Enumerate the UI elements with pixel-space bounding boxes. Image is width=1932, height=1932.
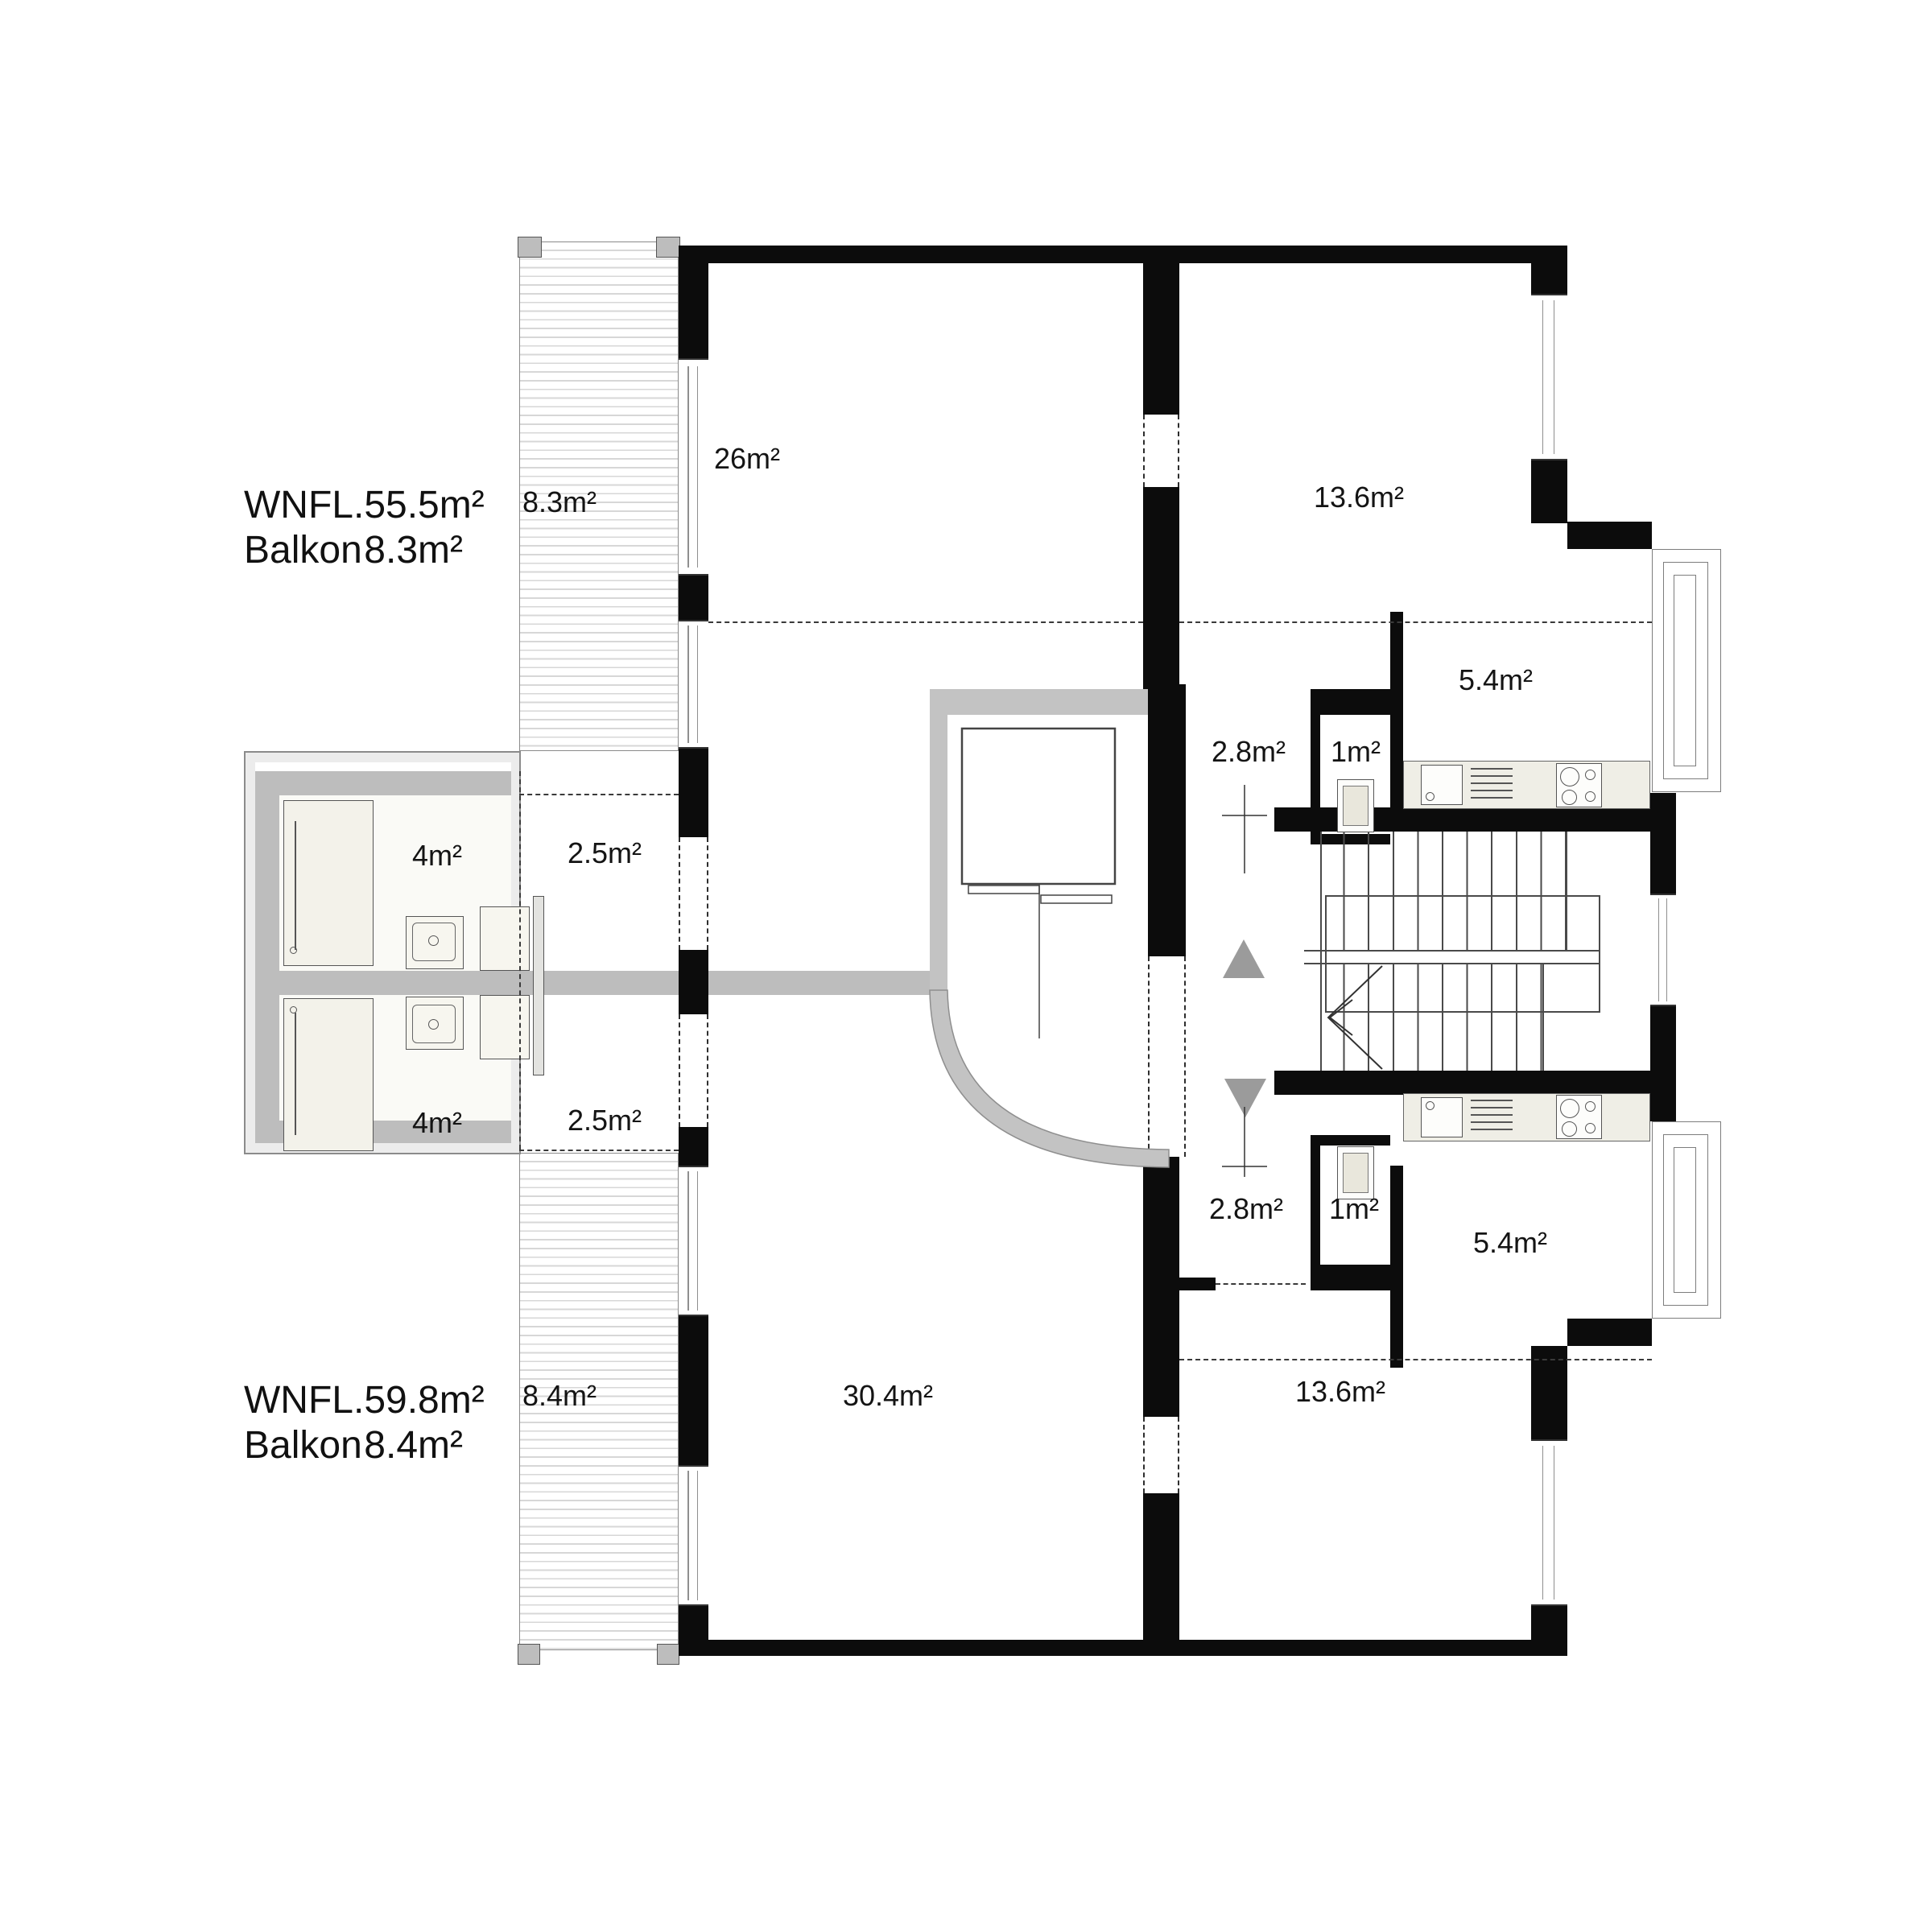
room-label-living-bottom: 30.4m²: [843, 1379, 933, 1413]
room-label-balcony-bottom: 8.4m²: [522, 1379, 597, 1413]
wall-wc: [1311, 1135, 1390, 1146]
wall-stairwell-bottom: [1274, 1071, 1676, 1095]
dashed-opening: [1143, 415, 1179, 487]
elevator-door-leaf: [968, 885, 1039, 894]
shower-partition: [533, 896, 544, 1075]
balkon-bottom-label: Balkon: [244, 1423, 362, 1468]
dashed-wall: [519, 1150, 679, 1151]
bathtub-line: [295, 821, 296, 950]
room-label-kitchen-top: 5.4m²: [1459, 663, 1533, 697]
wall-wc: [1311, 715, 1320, 844]
room-label-wc-bottom: 1m²: [1329, 1192, 1379, 1226]
wall-stairwell-top: [1274, 807, 1676, 832]
balkon-bottom-row: Balkon 8.4m²: [244, 1423, 463, 1468]
window: [1531, 1439, 1567, 1606]
room-label-balcony-top: 8.3m²: [522, 485, 597, 519]
dish-drainer-icon: [1471, 1100, 1513, 1135]
wall-wc: [1311, 1135, 1320, 1265]
wall-stairwell-right: [1650, 1006, 1676, 1121]
dashed-boundary: [1179, 621, 1652, 623]
dashed-opening: [1143, 1417, 1179, 1493]
elevator-wall-top: [930, 689, 1148, 715]
stair-flight-edge: [1320, 832, 1322, 1071]
balkon-top-row: Balkon 8.3m²: [244, 528, 463, 573]
balkon-bottom-value: 8.4m²: [364, 1423, 463, 1468]
wnfl-bottom-label: WNFL.: [244, 1378, 364, 1423]
pod-wall-top: [255, 771, 511, 795]
burner-icon: [1562, 1121, 1577, 1137]
wall-exterior-left: [679, 1316, 708, 1465]
elevator-car: [962, 729, 1115, 884]
burner-icon: [1585, 1123, 1596, 1133]
wall-elevator-lobby: [1148, 684, 1186, 956]
pod-wall-left: [255, 771, 279, 1143]
toilet-bowl: [1343, 786, 1368, 826]
balkon-top-label: Balkon: [244, 528, 362, 573]
wall-interior: [1143, 1155, 1179, 1417]
dish-drainer-icon: [1471, 768, 1513, 803]
sink-drain-icon: [1426, 1101, 1435, 1110]
wall-exterior-left: [679, 1606, 708, 1656]
balcony-post: [656, 237, 680, 258]
elevator-door-leaf: [1041, 895, 1112, 903]
wall-interior: [1143, 1493, 1179, 1640]
wnfl-bottom-row: WNFL. 59.8m²: [244, 1378, 463, 1423]
bathtub: [283, 998, 374, 1151]
burner-icon: [1585, 791, 1596, 802]
washbasin-drain-icon: [428, 1019, 439, 1030]
dashed-boundary: [1179, 1359, 1652, 1360]
wnfl-bottom-value: 59.8m²: [364, 1378, 484, 1423]
dashed-wall: [519, 794, 679, 795]
wall-exterior-right: [1531, 1606, 1567, 1656]
dashed-door-opening: [679, 837, 708, 950]
floor-plan: WNFL. 55.5m² Balkon 8.3m² WNFL. 59.8m² B…: [0, 0, 1932, 1932]
apartment-bottom-title: WNFL. 59.8m² Balkon 8.4m²: [244, 1378, 463, 1468]
toilet-bowl: [1343, 1153, 1368, 1193]
balkon-top-value: 8.3m²: [364, 528, 463, 573]
room-label-bath-bottom: 4m²: [412, 1106, 462, 1140]
room-label-vestibule-top: 2.5m²: [568, 836, 642, 870]
burner-icon: [1560, 1099, 1579, 1118]
shower-unit: [480, 995, 530, 1059]
wall-exterior-right: [1531, 246, 1567, 294]
room-label-bedroom-bottom: 13.6m²: [1295, 1375, 1385, 1409]
dashed-door-opening: [679, 1014, 708, 1127]
dashed-boundary: [1216, 1283, 1306, 1285]
wall-stub: [1179, 1278, 1216, 1290]
room-label-vestibule-bottom: 2.5m²: [568, 1104, 642, 1137]
room-label-hall-bottom: 2.8m²: [1209, 1192, 1283, 1226]
dashed-wall: [519, 771, 521, 1150]
window: [679, 1465, 708, 1606]
washbasin-drain-icon: [428, 935, 439, 946]
dashed-boundary: [708, 621, 1143, 623]
room-label-bath-top: 4m²: [412, 839, 462, 873]
wall-interior: [1143, 487, 1179, 691]
balcony-post: [518, 1644, 540, 1665]
apartment-top-title: WNFL. 55.5m² Balkon 8.3m²: [244, 483, 463, 572]
window: [679, 358, 708, 576]
wall-interior: [1143, 263, 1179, 415]
room-label-living-top: 26m²: [714, 442, 780, 476]
room-label-bedroom-top: 13.6m²: [1314, 481, 1404, 514]
bathtub-drain-icon: [290, 1006, 297, 1013]
room-label-kitchen-bottom: 5.4m²: [1473, 1226, 1547, 1260]
window: [679, 1166, 708, 1316]
wnfl-top-row: WNFL. 55.5m²: [244, 483, 463, 528]
bathtub-line: [295, 1013, 296, 1135]
wall-wc: [1311, 689, 1403, 715]
wall-exterior-right: [1531, 460, 1567, 523]
wall-exterior-top: [680, 246, 1567, 263]
stair-guardrail: [1325, 895, 1600, 1013]
wall-wc: [1311, 1265, 1403, 1290]
elevator-wall-left: [930, 689, 947, 995]
wall-exterior-left: [679, 576, 708, 620]
burner-icon: [1562, 790, 1577, 805]
room-label-hall-top: 2.8m²: [1212, 735, 1286, 769]
wall-exterior-left: [679, 246, 708, 358]
bay-window-top-frame: [1674, 575, 1696, 766]
wnfl-top-value: 55.5m²: [364, 483, 484, 528]
stairs-down-arrow-icon: [1224, 1079, 1266, 1117]
window: [679, 620, 708, 749]
wall-kitchen: [1390, 612, 1403, 814]
wall-kitchen: [1390, 1166, 1403, 1368]
wall-exterior-left: [679, 950, 708, 1014]
wall-bay-stub: [1567, 1319, 1652, 1346]
curved-lobby-wall: [930, 990, 1169, 1167]
bathtub: [283, 800, 374, 966]
shower-unit: [480, 906, 530, 971]
room-label-wc-top: 1m²: [1331, 735, 1381, 769]
wall-bay-stub: [1567, 522, 1652, 549]
balcony-post: [657, 1644, 679, 1665]
stairs-up-arrow-icon: [1223, 939, 1265, 978]
party-wall-band: [255, 971, 930, 995]
sink-drain-icon: [1426, 792, 1435, 801]
wall-exterior-left: [679, 1127, 708, 1166]
bathtub-drain-icon: [290, 947, 297, 954]
burner-icon: [1560, 767, 1579, 786]
wall-exterior-bottom: [680, 1640, 1567, 1656]
window: [1531, 294, 1567, 460]
window-stairwell: [1650, 894, 1676, 1006]
burner-icon: [1585, 1101, 1596, 1112]
wnfl-top-label: WNFL.: [244, 483, 364, 528]
wall-exterior-left: [679, 749, 708, 837]
burner-icon: [1585, 770, 1596, 780]
balcony-post: [518, 237, 542, 258]
dashed-door-opening: [1148, 956, 1186, 1157]
bay-window-bottom-frame: [1674, 1147, 1696, 1293]
